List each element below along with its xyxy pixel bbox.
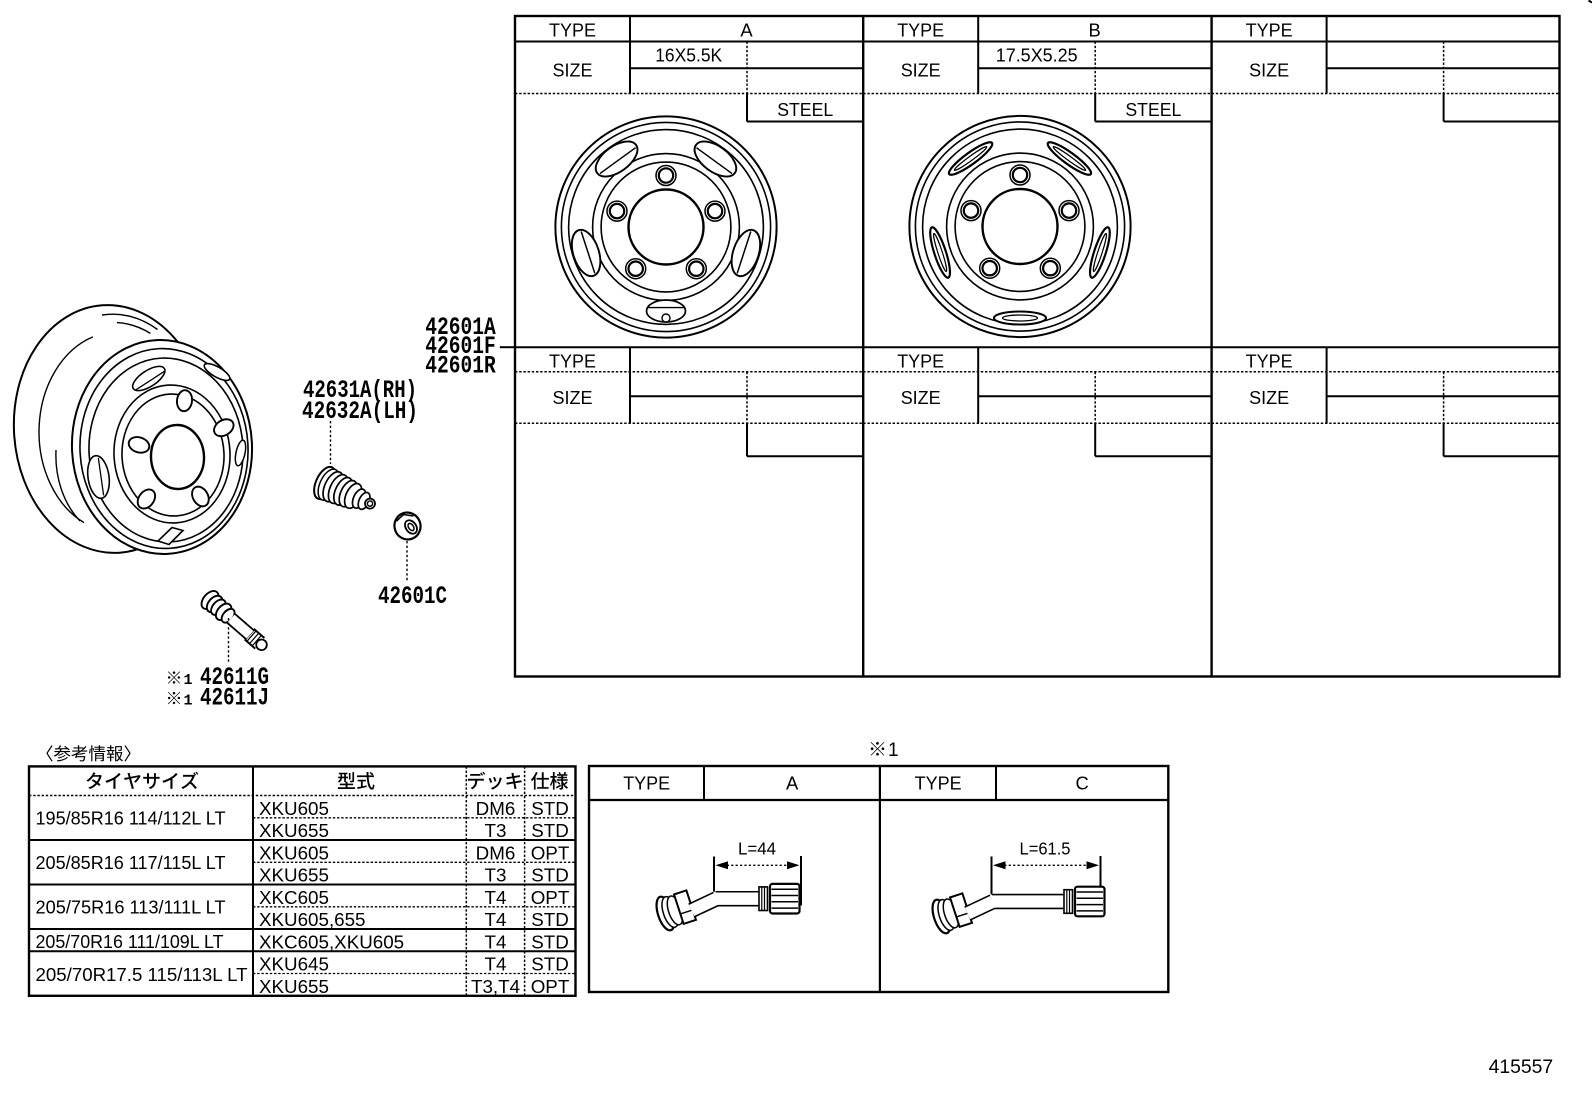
svg-text:STEEL: STEEL bbox=[1125, 99, 1181, 120]
svg-text:TYPE: TYPE bbox=[623, 773, 670, 794]
svg-text:SIZE: SIZE bbox=[901, 59, 941, 80]
svg-text:1: 1 bbox=[184, 672, 193, 689]
svg-text:XKU655: XKU655 bbox=[259, 976, 329, 997]
svg-text:195/85R16 114/112L LT: 195/85R16 114/112L LT bbox=[36, 808, 226, 829]
svg-text:L=44: L=44 bbox=[738, 839, 776, 859]
svg-text:42601R: 42601R bbox=[425, 351, 496, 380]
svg-text:STD: STD bbox=[531, 798, 569, 819]
svg-text:1: 1 bbox=[888, 740, 899, 761]
svg-text:42611J: 42611J bbox=[200, 684, 269, 713]
svg-text:T4: T4 bbox=[485, 954, 507, 975]
svg-text:T4: T4 bbox=[485, 909, 507, 930]
svg-text:STD: STD bbox=[531, 820, 569, 841]
svg-text:DM6: DM6 bbox=[476, 798, 516, 819]
svg-text:XKU645: XKU645 bbox=[259, 954, 329, 975]
svg-text:XKU605,655: XKU605,655 bbox=[259, 909, 366, 930]
svg-text:17.5X5.25: 17.5X5.25 bbox=[996, 45, 1078, 66]
svg-text:SIZE: SIZE bbox=[553, 59, 593, 80]
svg-text:16X5.5K: 16X5.5K bbox=[655, 45, 723, 66]
svg-text:TYPE: TYPE bbox=[1246, 350, 1293, 371]
svg-text:T3: T3 bbox=[485, 865, 507, 886]
svg-text:STEEL: STEEL bbox=[777, 99, 833, 120]
svg-text:A: A bbox=[786, 773, 799, 794]
svg-text:STD: STD bbox=[531, 954, 569, 975]
svg-text:SIZE: SIZE bbox=[553, 387, 593, 408]
svg-text:OPT: OPT bbox=[531, 887, 570, 908]
svg-text:1: 1 bbox=[184, 693, 193, 710]
svg-text:DM6: DM6 bbox=[476, 843, 516, 864]
svg-text:T3,T4: T3,T4 bbox=[471, 976, 520, 997]
svg-text:205/75R16 113/111L LT: 205/75R16 113/111L LT bbox=[36, 897, 227, 918]
svg-text:B: B bbox=[1089, 20, 1101, 41]
svg-text:TYPE: TYPE bbox=[897, 20, 944, 41]
svg-text:XKU605: XKU605 bbox=[259, 798, 329, 819]
svg-text:XKC605: XKC605 bbox=[259, 887, 329, 908]
svg-text:TYPE: TYPE bbox=[1246, 20, 1293, 41]
svg-text:XKU655: XKU655 bbox=[259, 820, 329, 841]
svg-text:OPT: OPT bbox=[531, 843, 570, 864]
svg-text:TYPE: TYPE bbox=[549, 350, 596, 371]
svg-text:XKU605: XKU605 bbox=[259, 843, 329, 864]
svg-text:415557: 415557 bbox=[1489, 1057, 1554, 1078]
svg-text:SIZE: SIZE bbox=[1249, 59, 1289, 80]
svg-text:TYPE: TYPE bbox=[897, 350, 944, 371]
svg-text:TYPE: TYPE bbox=[915, 773, 962, 794]
svg-text:SIZE: SIZE bbox=[901, 387, 941, 408]
svg-text:T4: T4 bbox=[485, 932, 507, 953]
svg-text:42632A(LH): 42632A(LH) bbox=[302, 397, 418, 426]
svg-text:OPT: OPT bbox=[531, 976, 570, 997]
svg-text:C: C bbox=[1076, 773, 1089, 794]
svg-text:T4: T4 bbox=[485, 887, 507, 908]
svg-text:T3: T3 bbox=[485, 820, 507, 841]
svg-text:STD: STD bbox=[531, 909, 569, 930]
svg-text:42601C: 42601C bbox=[378, 582, 447, 611]
svg-text:STD: STD bbox=[531, 932, 569, 953]
svg-text:205/85R16 117/115L LT: 205/85R16 117/115L LT bbox=[36, 852, 226, 873]
svg-text:TYPE: TYPE bbox=[549, 20, 596, 41]
svg-text:205/70R17.5 115/113L LT: 205/70R17.5 115/113L LT bbox=[36, 964, 249, 985]
svg-text:A: A bbox=[740, 20, 753, 41]
svg-text:SIZE: SIZE bbox=[1249, 387, 1289, 408]
svg-text:205/70R16 111/109L LT: 205/70R16 111/109L LT bbox=[36, 931, 224, 952]
svg-text:XKU655: XKU655 bbox=[259, 865, 329, 886]
svg-text:XKC605,XKU605: XKC605,XKU605 bbox=[259, 932, 404, 953]
svg-text:STD: STD bbox=[531, 865, 569, 886]
svg-text:L=61.5: L=61.5 bbox=[1020, 839, 1071, 859]
